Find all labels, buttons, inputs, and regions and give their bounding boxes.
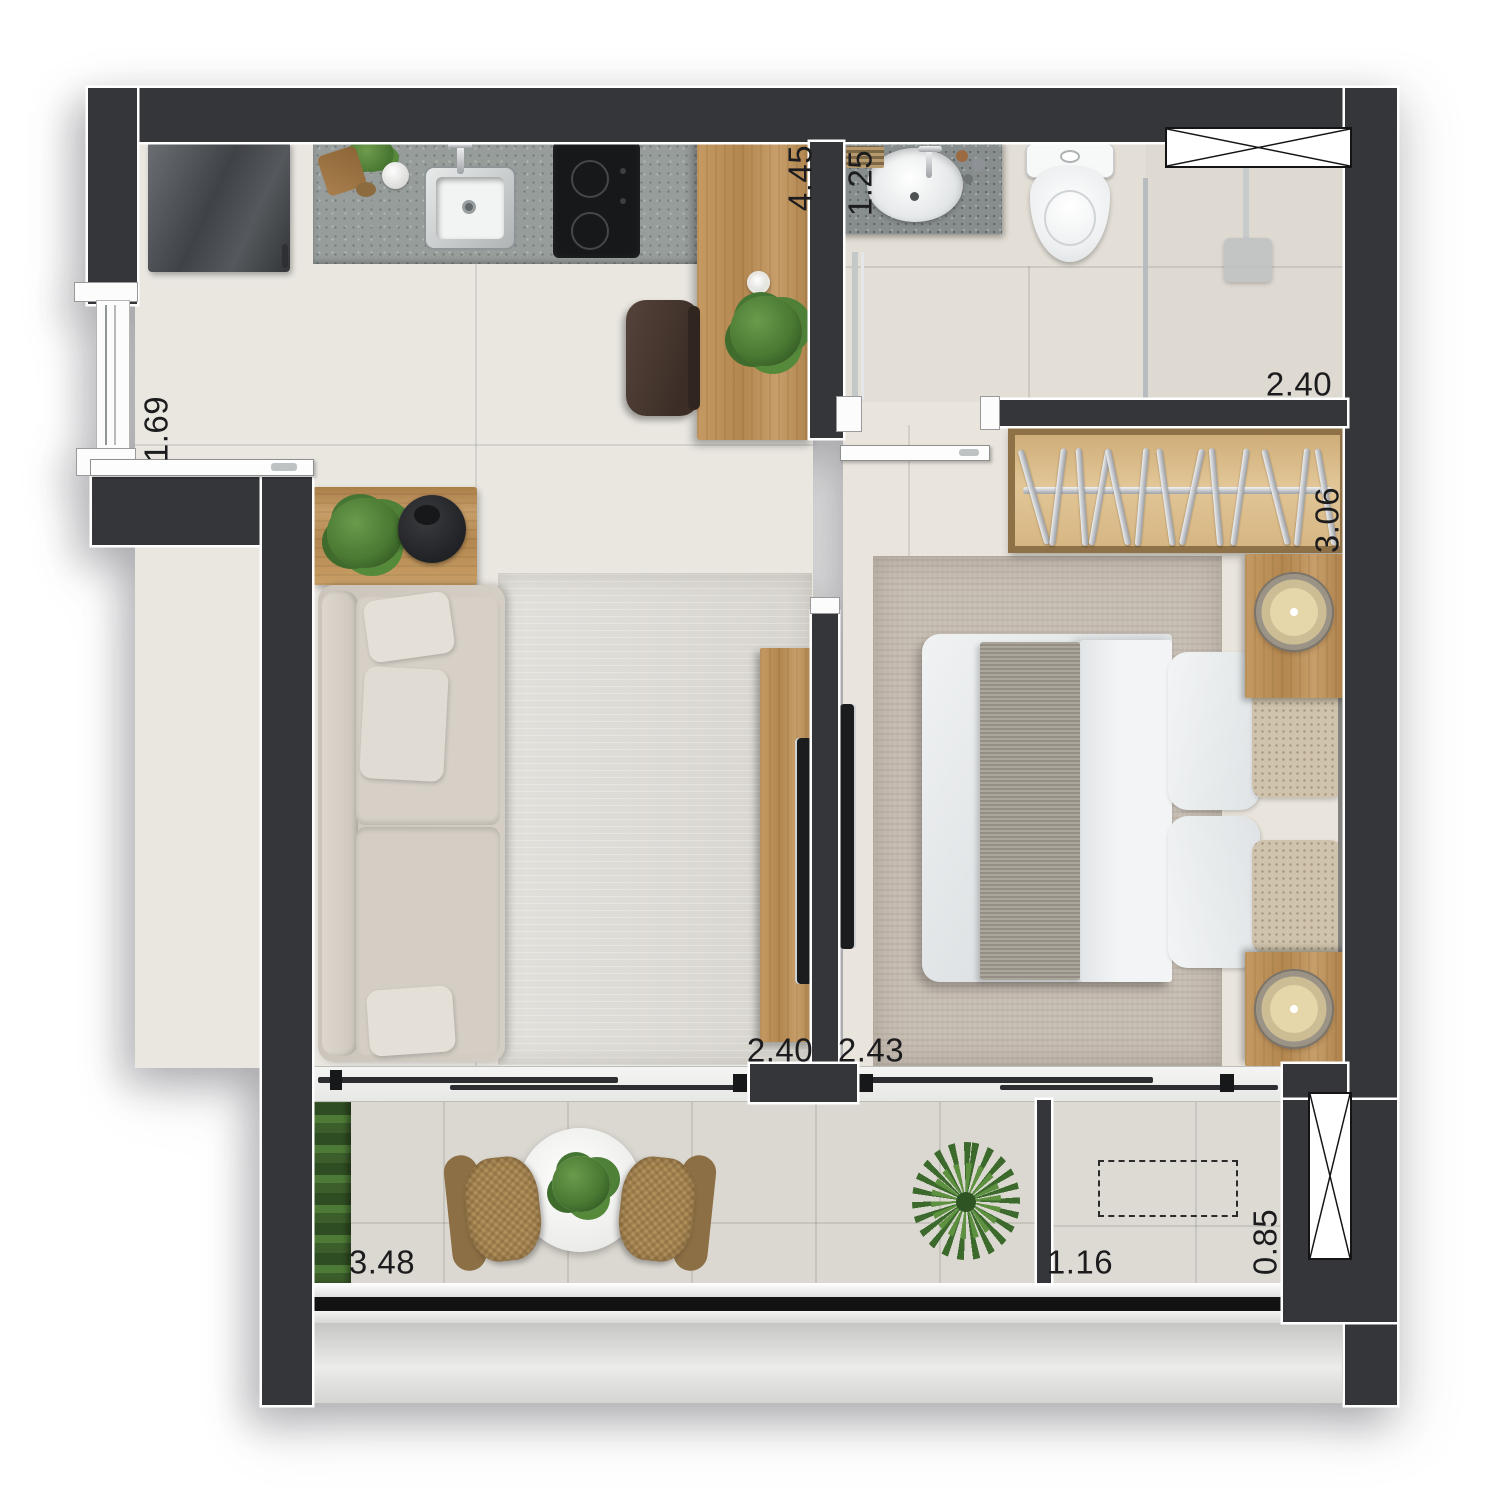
tile-line (1028, 266, 1030, 402)
balcony-railing (312, 1297, 1287, 1311)
toilet-bowl-inner (1044, 190, 1096, 246)
door-handle-icon (959, 449, 979, 456)
dimension-label: 4.45 (784, 145, 817, 211)
shower-head-icon (1224, 238, 1272, 282)
vertical-garden (313, 1098, 351, 1283)
cooktop-control-icon (620, 168, 626, 174)
bed-runner (980, 642, 1080, 980)
tv-bedroom (840, 704, 854, 949)
bed-duvet-fold (1080, 640, 1172, 982)
tv-living (797, 738, 812, 984)
table-lamp (1256, 971, 1332, 1047)
hanger-icon (1076, 448, 1089, 546)
hanger-icon (1105, 448, 1131, 545)
living-window (312, 1066, 750, 1102)
hanger-icon (1230, 448, 1250, 546)
balcony-chair (442, 1144, 546, 1277)
vanity-decor (963, 174, 973, 184)
hanger-icon (1018, 449, 1051, 545)
window-mullion (330, 1070, 342, 1090)
sofa-pillow (359, 666, 449, 782)
window-mullion (1220, 1074, 1234, 1092)
vanity-drain-icon (910, 192, 919, 201)
refrigerator (148, 142, 290, 272)
wall-window-pier (750, 1064, 857, 1102)
sofa-pillow (362, 590, 456, 663)
window-mullion (859, 1074, 873, 1092)
tile-line (443, 1100, 445, 1283)
wall-living-bedroom-divider (812, 612, 838, 1068)
bathroom-door-pocket-glass (861, 252, 864, 400)
entry-jamb (74, 282, 138, 302)
dimension-label: 3.06 (1311, 487, 1344, 553)
floor-plan: 4.45 1.25 2.40 1.69 3.06 2.40 2.43 3.48 … (0, 0, 1500, 1491)
bathroom-sliding-door (840, 445, 990, 461)
sink-drain (462, 200, 476, 214)
dimension-label: 1.16 (1047, 1246, 1113, 1279)
wardrobe (1008, 428, 1347, 553)
divider-wall-cap (810, 597, 840, 614)
bedroom-window-glass (863, 1077, 1153, 1083)
sofa-pillow (366, 985, 456, 1057)
dimension-label: 1.25 (844, 150, 877, 216)
burner-icon (571, 160, 609, 198)
decor-tray-item (414, 505, 440, 525)
entry-door (90, 459, 314, 476)
balcony-slab-edge (312, 1283, 1287, 1297)
wardrobe-rod (1023, 487, 1332, 494)
vanity-decor (956, 150, 968, 162)
living-window-glass (450, 1085, 746, 1090)
dimension-label: 2.40 (1266, 368, 1332, 401)
side-table-plant (327, 498, 403, 568)
cup (747, 271, 770, 294)
faucet-handle-icon (448, 143, 472, 148)
tile-line (815, 1100, 817, 1283)
dimension-label: 0.85 (1249, 1209, 1282, 1275)
bathroom-door-jamb (980, 396, 1000, 430)
balcony-chair (614, 1144, 718, 1277)
dimension-label: 2.40 (747, 1034, 813, 1067)
hanger-icon (1135, 448, 1150, 546)
bowl (382, 162, 409, 189)
faucet-icon (457, 146, 464, 174)
hanger-icon (1156, 448, 1176, 546)
table-lamp (1256, 574, 1332, 650)
palm-center (956, 1192, 976, 1212)
desk-plant (730, 296, 802, 366)
bed-pillow-accent (1252, 840, 1342, 952)
wall-left-upper (88, 88, 137, 304)
toilet-flush-icon (1060, 150, 1080, 163)
wall-left-lower (262, 477, 312, 1405)
hanger-icon (1209, 448, 1224, 546)
shower-glass-partition (1143, 178, 1148, 402)
bathroom-door-jamb (836, 396, 862, 432)
sidelight-glass-line (114, 305, 116, 445)
hanger-icon (1261, 449, 1291, 546)
shaft-x-icon (1308, 1092, 1352, 1260)
dimension-label: 1.69 (140, 396, 173, 462)
cooktop-control-icon (620, 198, 626, 204)
refrigerator-handle (282, 244, 288, 268)
vanity-faucet-icon (918, 146, 942, 152)
bed-pillow-white (1168, 816, 1260, 968)
table-centerpiece-plant (552, 1156, 610, 1212)
door-handle-icon (271, 463, 297, 471)
shaft-x-icon (1165, 127, 1352, 168)
living-window-glass (318, 1077, 618, 1083)
hanger-icon (1179, 448, 1205, 545)
bathroom-door-pocket-glass (852, 252, 858, 400)
bed-pillow-accent (1252, 686, 1342, 798)
bedroom-window-glass (1000, 1085, 1278, 1090)
sofa-back-cushion (322, 591, 358, 1056)
tech-area-outline (1098, 1160, 1238, 1217)
floor-plan-canvas: 4.45 1.25 2.40 1.69 3.06 2.40 2.43 3.48 … (0, 0, 1500, 1491)
dimension-label: 2.43 (838, 1034, 904, 1067)
vanity-faucet-icon (926, 150, 932, 178)
vanity-decor (972, 158, 985, 171)
entry-sidelight (96, 300, 130, 452)
lower-slab (312, 1323, 1342, 1404)
bread-item (356, 182, 376, 197)
burner-icon (571, 212, 609, 250)
dimension-label: 3.48 (349, 1246, 415, 1279)
wall-bathroom-bottom (995, 400, 1347, 426)
stool-back (688, 306, 700, 410)
window-mullion (733, 1074, 747, 1092)
hanger-icon (1049, 448, 1067, 546)
sidelight-glass-line (105, 305, 107, 445)
tile-line (135, 444, 813, 446)
balcony-slab-edge (312, 1311, 1287, 1323)
